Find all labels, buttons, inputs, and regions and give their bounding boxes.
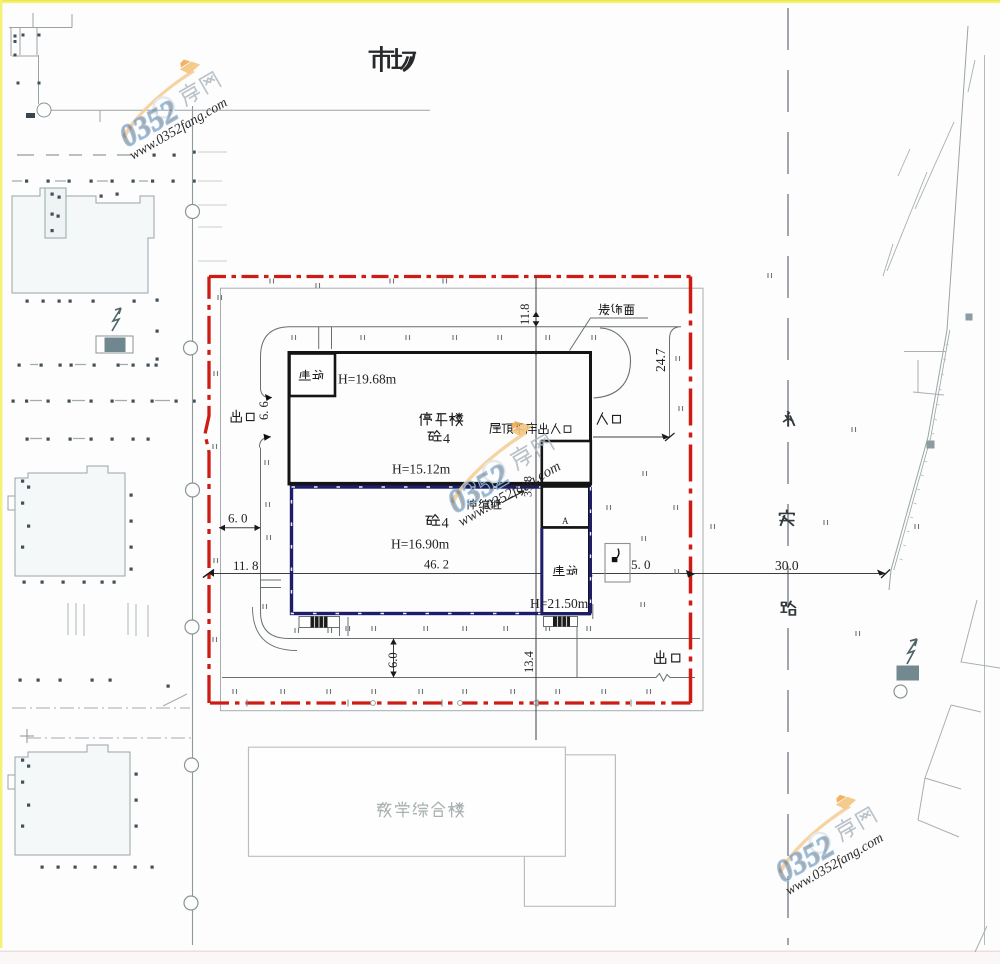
svg-text:11. 8: 11. 8 (233, 558, 259, 573)
svg-text:H=16.90m: H=16.90m (391, 537, 450, 552)
svg-text:A: A (562, 516, 569, 526)
svg-text:46. 2: 46. 2 (424, 558, 449, 572)
svg-text:H=15.12m: H=15.12m (392, 462, 451, 477)
svg-text:H=21.50m: H=21.50m (530, 596, 589, 611)
svg-text:5. 0: 5. 0 (631, 557, 651, 572)
svg-text:11.8: 11.8 (518, 304, 532, 325)
svg-text:30.0: 30.0 (775, 558, 799, 573)
svg-text:6.0: 6.0 (386, 652, 400, 668)
svg-text:H=19.68m: H=19.68m (338, 372, 397, 387)
svg-text:4: 4 (442, 516, 450, 532)
svg-text:6. 6: 6. 6 (257, 401, 271, 420)
svg-text:24.7: 24.7 (653, 348, 668, 372)
svg-text:13.4: 13.4 (522, 650, 536, 673)
svg-text:4: 4 (443, 432, 450, 447)
svg-text:6. 0: 6. 0 (228, 511, 248, 526)
